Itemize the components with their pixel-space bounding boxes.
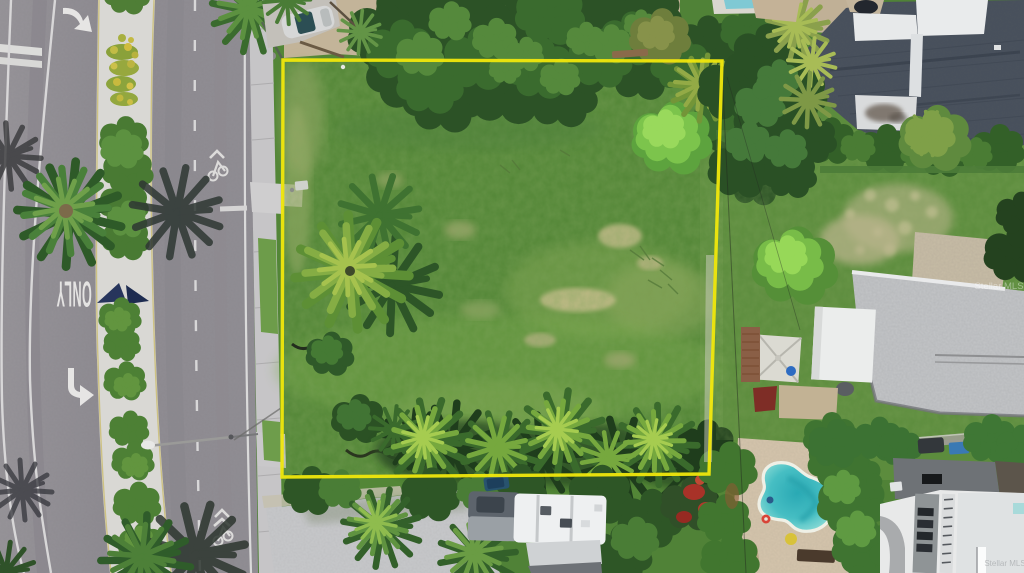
svg-text:Stellar MLS: Stellar MLS: [984, 559, 1024, 568]
svg-text:Stellar MLS: Stellar MLS: [974, 281, 1023, 292]
svg-text:ONLY: ONLY: [56, 273, 92, 314]
